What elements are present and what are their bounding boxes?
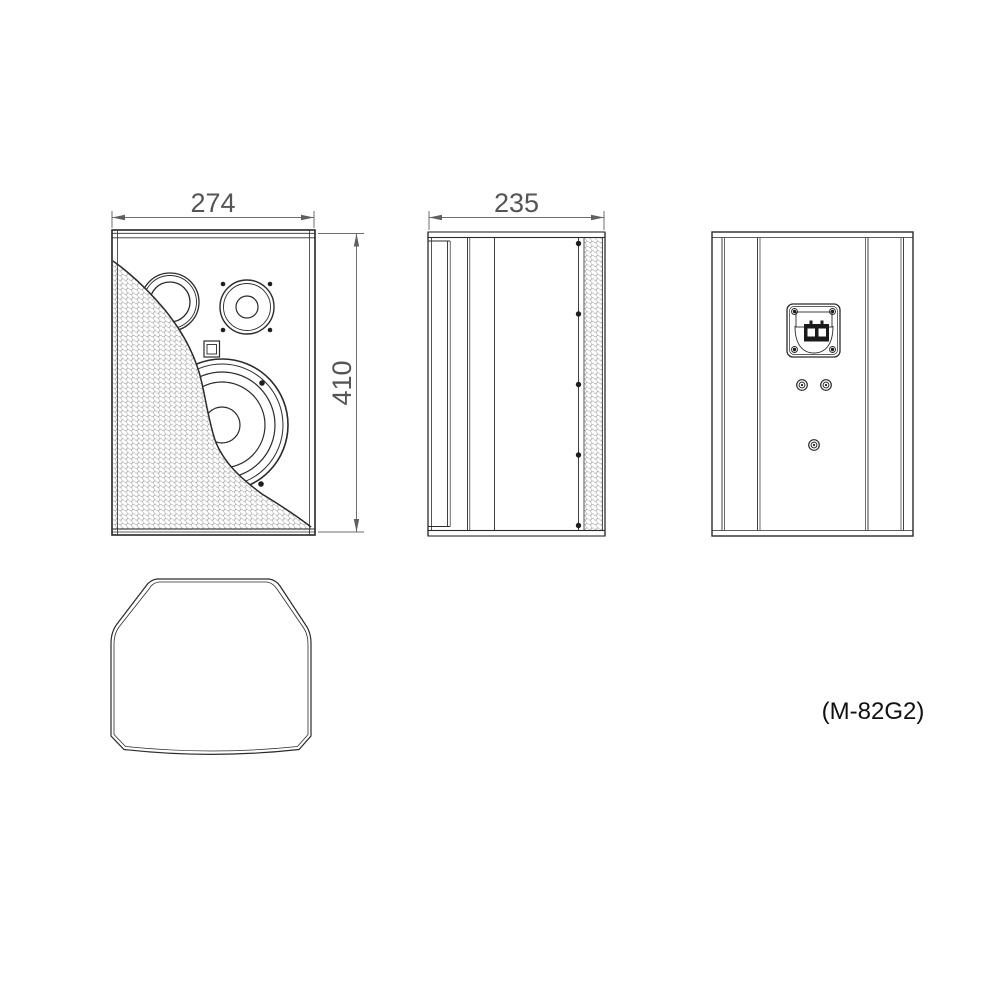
screw	[576, 241, 581, 246]
speaker-technical-drawing: 274 235 410 (M-82G2)	[0, 0, 1000, 1000]
dim-label-410: 410	[327, 360, 357, 405]
screw	[268, 328, 273, 333]
model-label: (M-82G2)	[822, 698, 925, 725]
dimension-side-depth: 235	[429, 188, 604, 230]
side-grille-strip	[584, 238, 603, 531]
bottom-outline-outer	[111, 579, 311, 754]
screw	[258, 481, 264, 487]
screw	[268, 282, 273, 287]
rear-cabinet-outline	[712, 232, 913, 536]
screw	[576, 311, 581, 316]
terminal-plate	[787, 304, 840, 357]
side-view	[428, 232, 605, 536]
dim-label-235: 235	[494, 188, 539, 218]
side-bottom-cap	[428, 531, 605, 537]
dimension-front-width: 274	[112, 188, 314, 228]
dim-label-274: 274	[190, 188, 235, 218]
front-view	[112, 230, 315, 535]
screw	[221, 282, 226, 287]
screw	[259, 380, 265, 386]
bottom-view	[111, 579, 311, 754]
technical-drawing-page: 274 235 410 (M-82G2)	[0, 0, 1000, 1000]
rear-view	[712, 232, 913, 536]
side-top-cap	[428, 232, 605, 238]
screw	[576, 382, 581, 387]
screw	[221, 328, 226, 333]
screw	[576, 452, 581, 457]
dimension-height: 410	[318, 234, 364, 533]
screw	[576, 523, 581, 528]
